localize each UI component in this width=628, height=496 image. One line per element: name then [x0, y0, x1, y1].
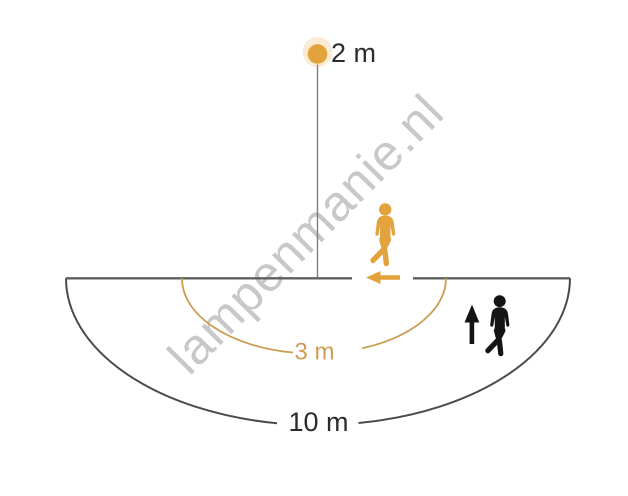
- walking-person-orange-icon: [373, 203, 395, 263]
- diagram-scene: lampenmanie.nl 2 m 10 m 3 m: [0, 0, 628, 496]
- tangential-direction-arrow-icon: [366, 271, 400, 284]
- radial-range-label: 10 m: [288, 407, 348, 437]
- sensor-dot: [308, 44, 328, 64]
- tangential-range-label: 3 m: [294, 339, 334, 366]
- tangential-range-arc-right: [362, 278, 446, 348]
- radial-range-arc-right: [359, 278, 571, 423]
- radial-direction-arrow-icon: [465, 305, 480, 345]
- sensor-range-diagram: lampenmanie.nl 2 m 10 m 3 m: [0, 0, 628, 496]
- walking-person-black-icon: [488, 295, 510, 353]
- mounting-height-label: 2 m: [331, 38, 376, 68]
